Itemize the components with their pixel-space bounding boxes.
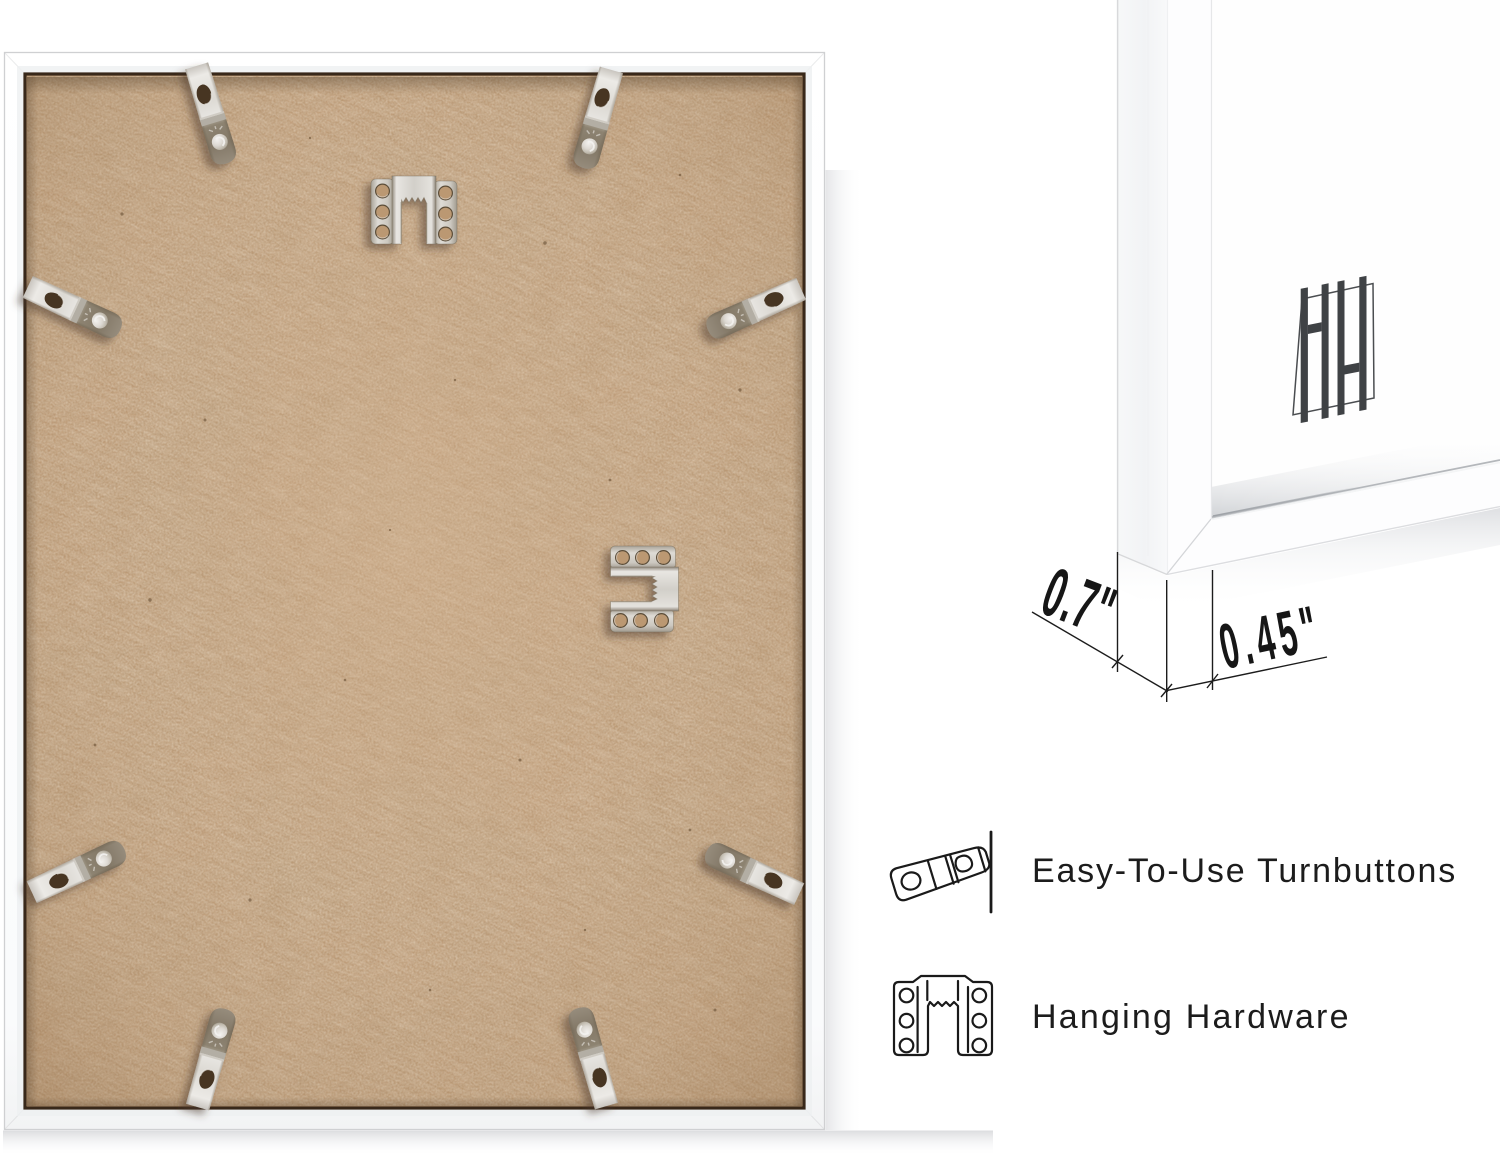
svg-text:0.7": 0.7"	[1032, 553, 1127, 652]
svg-text:0.45": 0.45"	[1213, 591, 1328, 683]
svg-text:Easy-To-Use Turnbuttons: Easy-To-Use Turnbuttons	[1032, 852, 1457, 890]
svg-text:Hanging Hardware: Hanging Hardware	[1032, 998, 1351, 1036]
